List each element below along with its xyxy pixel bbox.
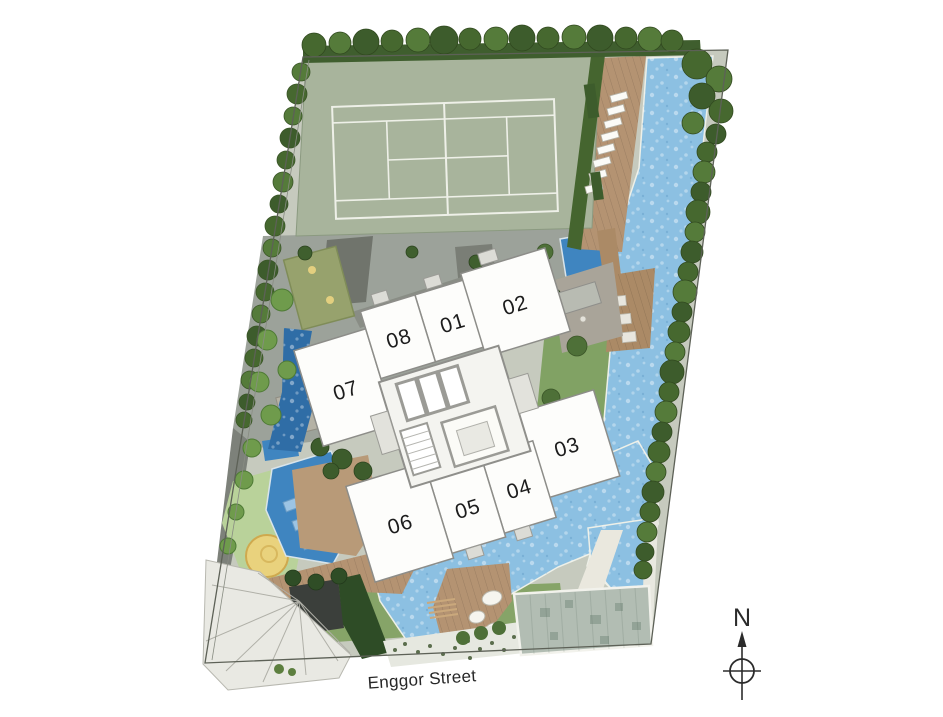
site-plan: 01 02 03 04 05 06 07 08 Enggor Street N [0, 0, 943, 717]
street-label: Enggor Street [367, 666, 477, 693]
compass-icon [723, 631, 761, 700]
site-plan-page: 01 02 03 04 05 06 07 08 Enggor Street N [0, 0, 943, 717]
street-name: Enggor Street [367, 666, 477, 693]
north-indicator: N [723, 604, 761, 700]
fitness-item [308, 266, 316, 274]
tennis-court [296, 54, 605, 250]
fitness-item [326, 296, 334, 304]
north-label: N [733, 604, 751, 632]
